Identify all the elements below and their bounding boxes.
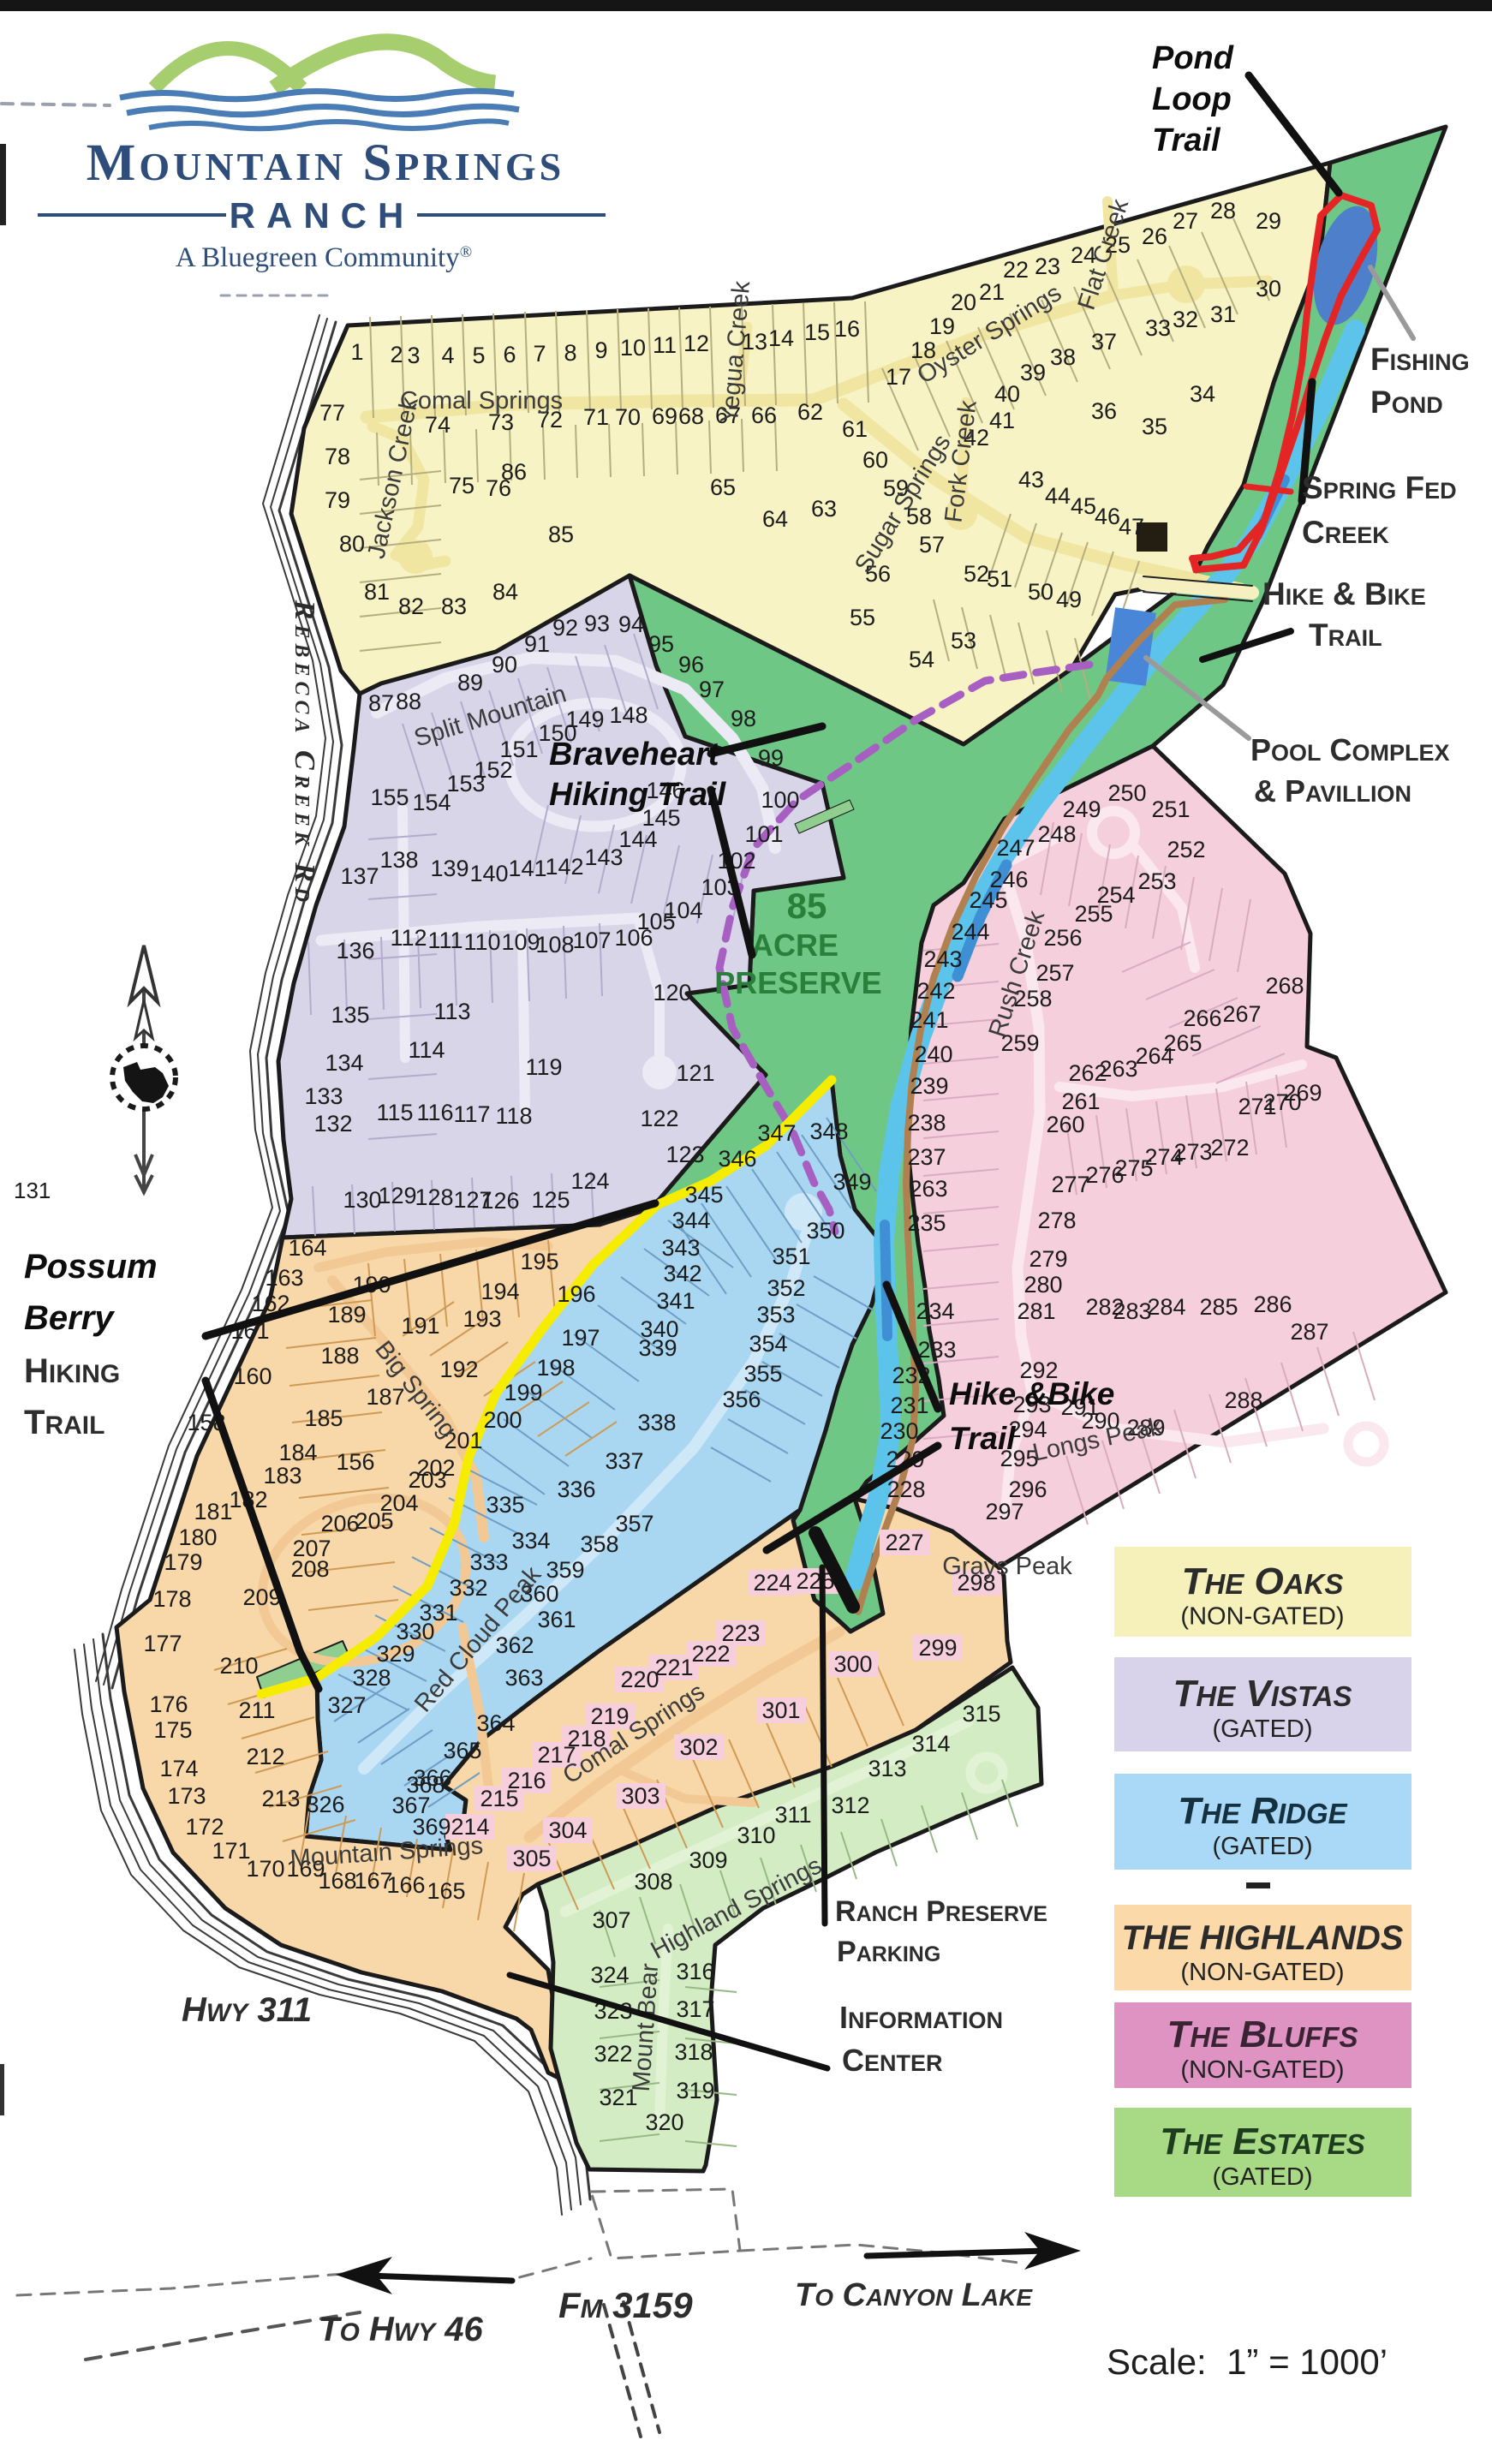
svg-text:174: 174 [159,1756,198,1781]
svg-text:356: 356 [722,1387,761,1412]
svg-text:119: 119 [525,1054,562,1080]
svg-text:4: 4 [441,343,454,368]
svg-text:(GATED): (GATED) [1212,1715,1312,1743]
svg-text:271: 271 [1238,1094,1276,1119]
svg-text:199: 199 [504,1380,542,1405]
svg-text:60: 60 [862,447,888,473]
svg-text:51: 51 [987,566,1012,592]
svg-text:213: 213 [261,1786,300,1811]
svg-text:343: 343 [661,1235,700,1261]
svg-text:70: 70 [615,404,641,430]
svg-text:141: 141 [508,856,546,881]
svg-text:10: 10 [620,335,646,361]
svg-text:252: 252 [1167,837,1205,862]
svg-text:64: 64 [762,506,788,532]
svg-text:361: 361 [537,1607,576,1632]
svg-text:160: 160 [233,1363,272,1389]
svg-text:305: 305 [512,1846,551,1871]
svg-text:26: 26 [1142,224,1167,249]
svg-text:317: 317 [676,1996,714,2022]
svg-text:195: 195 [520,1249,558,1274]
svg-text:33: 33 [1145,315,1171,341]
svg-text:191: 191 [401,1313,439,1339]
svg-text:30: 30 [1256,276,1281,301]
svg-text:188: 188 [320,1343,359,1369]
svg-text:342: 342 [663,1261,701,1286]
svg-text:125: 125 [531,1187,570,1213]
svg-text:297: 297 [985,1499,1024,1524]
svg-text:66: 66 [751,403,777,428]
svg-text:9: 9 [594,337,607,363]
svg-text:85: 85 [787,886,827,926]
svg-text:21: 21 [979,279,1005,305]
svg-text:ACRE: ACRE [751,928,839,963]
svg-text:148: 148 [609,702,648,728]
svg-text:328: 328 [352,1665,391,1691]
svg-text:347: 347 [757,1120,796,1146]
svg-text:230: 230 [880,1418,918,1444]
svg-text:153: 153 [446,771,485,796]
svg-text:15: 15 [804,319,830,345]
svg-text:Comal Springs: Comal Springs [400,387,563,415]
svg-text:353: 353 [756,1302,795,1327]
svg-text:310: 310 [737,1823,775,1848]
svg-text:Scale: 1” = 1000’: Scale: 1” = 1000’ [1107,2342,1388,2382]
svg-text:198: 198 [536,1355,575,1381]
svg-text:365: 365 [443,1738,481,1763]
svg-text:260: 260 [1046,1112,1084,1137]
svg-text:316: 316 [676,1959,714,1984]
svg-text:20: 20 [951,289,976,315]
svg-text:196: 196 [557,1281,595,1307]
svg-text:179: 179 [164,1549,202,1575]
svg-text:(NON-GATED): (NON-GATED) [1180,1959,1344,1986]
svg-text:263: 263 [909,1176,947,1202]
svg-text:92: 92 [552,615,578,641]
svg-text:341: 341 [656,1288,695,1314]
svg-text:205: 205 [355,1508,393,1534]
svg-text:71: 71 [583,404,609,430]
svg-text:80: 80 [339,531,365,557]
svg-text:334: 334 [511,1528,550,1554]
svg-text:68: 68 [678,403,704,429]
svg-text:THE HIGHLANDS: THE HIGHLANDS [1122,1919,1404,1957]
svg-text:216: 216 [507,1768,546,1793]
svg-text:Grays Peak: Grays Peak [942,1553,1072,1580]
svg-text:344: 344 [671,1208,710,1233]
svg-text:322: 322 [594,2041,632,2067]
svg-text:135: 135 [331,1002,369,1028]
svg-text:(GATED): (GATED) [1212,1833,1312,1860]
svg-text:86: 86 [501,459,527,485]
svg-text:2: 2 [390,342,403,367]
svg-text:16: 16 [834,316,860,342]
svg-text:Hiking Trail: Hiking Trail [549,777,727,813]
svg-text:27: 27 [1173,208,1198,234]
svg-text:331: 331 [419,1600,457,1626]
svg-text:133: 133 [304,1083,343,1109]
svg-text:178: 178 [152,1586,191,1612]
svg-text:61: 61 [842,416,868,442]
svg-text:345: 345 [684,1182,723,1208]
svg-text:75: 75 [449,473,474,498]
svg-text:363: 363 [504,1665,543,1691]
svg-text:22: 22 [1003,257,1029,283]
svg-text:39: 39 [1020,360,1046,385]
svg-text:238: 238 [907,1110,946,1136]
svg-text:176: 176 [149,1691,188,1717]
svg-text:41: 41 [989,408,1015,433]
svg-text:239: 239 [910,1073,948,1099]
svg-text:312: 312 [831,1793,869,1818]
svg-text:114: 114 [408,1037,445,1063]
svg-text:349: 349 [833,1169,871,1195]
svg-text:197: 197 [561,1325,600,1351]
svg-text:8: 8 [564,340,576,366]
svg-text:193: 193 [463,1306,501,1332]
svg-text:53: 53 [951,628,976,653]
svg-text:206: 206 [320,1511,359,1536]
svg-text:185: 185 [304,1405,343,1431]
svg-text:352: 352 [767,1275,805,1301]
svg-text:281: 281 [1017,1298,1055,1324]
svg-text:241: 241 [910,1007,948,1033]
svg-text:84: 84 [492,579,518,605]
svg-text:117: 117 [453,1101,490,1127]
svg-text:131: 131 [14,1178,51,1203]
svg-text:308: 308 [634,1869,672,1894]
svg-text:242: 242 [916,978,955,1004]
svg-text:227: 227 [885,1530,923,1555]
svg-text:38: 38 [1050,344,1076,370]
svg-text:362: 362 [495,1632,534,1658]
svg-text:171: 171 [212,1838,250,1864]
svg-text:122: 122 [640,1106,678,1131]
svg-text:327: 327 [327,1692,366,1718]
svg-text:285: 285 [1199,1294,1238,1320]
svg-text:34: 34 [1190,381,1215,407]
svg-text:240: 240 [914,1041,952,1067]
svg-text:211: 211 [238,1697,275,1723]
svg-text:181: 181 [194,1499,232,1524]
svg-text:138: 138 [379,847,418,873]
svg-text:348: 348 [809,1119,848,1144]
svg-text:354: 354 [749,1331,787,1357]
svg-text:220: 220 [620,1667,659,1692]
svg-text:223: 223 [721,1620,760,1646]
svg-text:311: 311 [774,1802,811,1828]
svg-text:PRESERVE: PRESERVE [714,965,881,1000]
svg-text:93: 93 [584,611,610,636]
svg-text:Trail: Trail [949,1421,1016,1456]
svg-text:FM 3159: FM 3159 [558,2285,693,2325]
svg-text:19: 19 [929,313,955,339]
svg-text:336: 336 [557,1477,595,1502]
svg-text:130: 130 [343,1187,381,1213]
svg-text:Trail: Trail [1152,122,1221,158]
svg-text:45: 45 [1071,493,1096,519]
svg-text:74: 74 [425,412,451,438]
svg-text:11: 11 [653,332,677,358]
svg-text:143: 143 [584,844,623,870]
svg-text:266: 266 [1183,1005,1221,1031]
svg-text:106: 106 [614,925,653,951]
svg-text:132: 132 [313,1111,352,1137]
svg-text:79: 79 [325,487,350,513]
svg-text:97: 97 [699,677,725,702]
svg-text:303: 303 [621,1783,659,1809]
svg-text:47: 47 [1119,514,1144,540]
svg-text:121: 121 [676,1060,714,1086]
svg-text:6: 6 [503,342,516,367]
svg-text:78: 78 [325,444,350,469]
svg-text:173: 173 [167,1783,206,1809]
svg-text:261: 261 [1061,1089,1100,1114]
svg-text:247: 247 [996,835,1035,861]
svg-text:237: 237 [907,1144,946,1170]
svg-text:251: 251 [1151,796,1190,822]
svg-text:82: 82 [398,594,424,619]
svg-text:(NON-GATED): (NON-GATED) [1180,2056,1344,2084]
svg-text:RANCH: RANCH [230,195,415,236]
svg-text:128: 128 [415,1184,453,1210]
svg-text:55: 55 [850,605,875,630]
svg-text:14: 14 [768,325,794,351]
svg-text:224: 224 [753,1570,791,1596]
svg-text:(NON-GATED): (NON-GATED) [1180,1603,1344,1631]
svg-text:335: 335 [486,1492,524,1518]
svg-text:257: 257 [1035,960,1074,986]
svg-text:358: 358 [580,1531,618,1557]
svg-text:98: 98 [731,706,756,731]
svg-text:46: 46 [1095,504,1120,529]
svg-text:337: 337 [605,1448,643,1474]
svg-text:155: 155 [370,785,409,810]
svg-text:69: 69 [652,403,677,429]
svg-text:1: 1 [350,339,363,365]
svg-text:175: 175 [153,1717,192,1743]
svg-text:340: 340 [640,1316,678,1342]
svg-text:77: 77 [319,400,345,426]
svg-text:A Bluegreen Community®: A Bluegreen Community® [176,242,472,273]
svg-text:194: 194 [480,1279,519,1304]
svg-text:140: 140 [469,861,508,886]
svg-text:177: 177 [143,1631,182,1656]
svg-text:272: 272 [1210,1135,1249,1160]
svg-text:200: 200 [483,1407,522,1433]
svg-text:164: 164 [288,1235,326,1261]
svg-text:137: 137 [340,863,379,889]
svg-text:250: 250 [1107,780,1146,806]
svg-text:163: 163 [265,1265,303,1291]
svg-text:332: 332 [449,1575,487,1601]
svg-text:278: 278 [1037,1208,1076,1233]
svg-text:286: 286 [1253,1292,1292,1317]
svg-text:57: 57 [919,532,945,558]
svg-text:263: 263 [1099,1056,1137,1082]
svg-text:170: 170 [246,1856,284,1882]
svg-text:43: 43 [1018,467,1044,492]
svg-text:231: 231 [890,1393,928,1418]
svg-text:107: 107 [572,928,611,953]
svg-text:228: 228 [886,1477,925,1502]
svg-text:235: 235 [907,1210,946,1236]
svg-text:129: 129 [378,1183,416,1208]
svg-text:134: 134 [325,1050,363,1076]
svg-text:112: 112 [390,925,427,951]
svg-text:115: 115 [376,1100,413,1125]
svg-text:280: 280 [1024,1272,1062,1298]
svg-text:192: 192 [439,1357,478,1382]
svg-text:319: 319 [676,2078,714,2103]
svg-text:(GATED): (GATED) [1212,2163,1312,2191]
svg-text:154: 154 [412,790,451,815]
svg-text:95: 95 [648,631,674,657]
svg-text:83: 83 [441,594,467,619]
svg-text:307: 307 [592,1907,630,1933]
svg-text:28: 28 [1210,198,1236,224]
svg-text:256: 256 [1043,925,1082,951]
svg-text:351: 351 [772,1244,810,1269]
svg-text:113: 113 [433,999,470,1024]
svg-text:233: 233 [917,1337,956,1363]
svg-text:183: 183 [263,1463,301,1489]
svg-text:249: 249 [1062,796,1101,822]
svg-text:139: 139 [430,856,468,881]
svg-text:127: 127 [453,1187,492,1213]
svg-text:304: 304 [548,1817,587,1843]
svg-text:Hike &Bike: Hike &Bike [949,1376,1114,1411]
svg-text:314: 314 [911,1731,950,1757]
svg-text:326: 326 [306,1792,344,1817]
svg-text:338: 338 [637,1410,676,1435]
svg-text:49: 49 [1056,587,1082,612]
svg-text:63: 63 [811,496,837,522]
svg-text:329: 329 [376,1641,415,1667]
svg-text:255: 255 [1074,901,1113,927]
svg-text:118: 118 [495,1103,532,1129]
svg-text:109: 109 [501,929,540,955]
svg-text:315: 315 [962,1701,1000,1727]
svg-text:87: 87 [368,690,394,716]
svg-text:Loop: Loop [1152,81,1232,117]
svg-text:54: 54 [909,647,934,672]
svg-text:210: 210 [219,1653,258,1679]
svg-text:253: 253 [1137,868,1176,894]
svg-text:7: 7 [533,341,546,367]
svg-text:368: 368 [406,1772,445,1798]
svg-text:50: 50 [1028,579,1053,605]
svg-text:267: 267 [1222,1001,1261,1027]
svg-text:35: 35 [1142,414,1167,439]
svg-text:108: 108 [535,932,574,958]
svg-text:36: 36 [1091,398,1117,424]
svg-text:184: 184 [278,1440,317,1465]
svg-text:287: 287 [1290,1319,1328,1345]
svg-text:299: 299 [918,1635,957,1661]
svg-text:359: 359 [546,1557,584,1583]
svg-text:156: 156 [336,1449,374,1475]
svg-text:12: 12 [683,331,709,356]
svg-text:243: 243 [923,946,962,972]
svg-text:116: 116 [416,1100,453,1125]
svg-text:320: 320 [645,2109,683,2135]
svg-text:333: 333 [469,1549,508,1575]
svg-text:124: 124 [570,1168,609,1194]
svg-text:32: 32 [1173,307,1198,332]
svg-text:111: 111 [427,928,463,953]
svg-text:120: 120 [653,980,691,1005]
svg-text:Braveheart: Braveheart [549,737,720,773]
svg-text:208: 208 [290,1556,329,1582]
svg-text:100: 100 [761,787,799,813]
svg-text:172: 172 [185,1814,224,1840]
svg-text:62: 62 [797,399,823,425]
svg-text:29: 29 [1256,208,1281,234]
svg-text:288: 288 [1224,1387,1262,1413]
svg-text:37: 37 [1091,329,1117,355]
svg-text:101: 101 [744,821,783,847]
svg-text:244: 244 [951,919,989,945]
svg-text:364: 364 [476,1710,515,1736]
svg-text:23: 23 [1035,254,1060,279]
svg-text:313: 313 [868,1756,906,1781]
svg-text:89: 89 [457,670,483,695]
svg-text:283: 283 [1113,1298,1151,1324]
svg-text:302: 302 [679,1734,718,1760]
svg-text:Pond: Pond [1152,40,1234,76]
svg-text:52: 52 [964,561,989,587]
svg-text:277: 277 [1051,1172,1089,1197]
svg-text:234: 234 [916,1298,954,1324]
svg-text:40: 40 [994,381,1020,407]
svg-text:300: 300 [833,1651,872,1677]
svg-text:189: 189 [327,1302,366,1327]
svg-text:136: 136 [336,938,374,964]
svg-text:355: 355 [743,1361,782,1387]
svg-text:309: 309 [689,1847,727,1873]
svg-text:284: 284 [1147,1294,1185,1320]
svg-text:203: 203 [408,1467,446,1493]
svg-text:Berry: Berry [24,1299,115,1337]
svg-text:268: 268 [1265,973,1304,999]
svg-text:276: 276 [1085,1162,1124,1188]
svg-text:221: 221 [654,1655,693,1680]
svg-text:246: 246 [989,867,1028,892]
svg-text:142: 142 [545,854,583,880]
svg-text:99: 99 [758,745,784,771]
svg-text:123: 123 [665,1142,704,1167]
svg-text:165: 165 [427,1878,465,1904]
svg-text:90: 90 [492,652,517,677]
svg-text:81: 81 [364,579,390,605]
svg-text:110: 110 [463,929,500,955]
svg-text:91: 91 [524,631,550,657]
svg-text:85: 85 [548,522,574,547]
svg-text:88: 88 [396,689,421,714]
svg-text:31: 31 [1210,301,1236,327]
svg-text:Possum: Possum [24,1248,158,1286]
svg-text:65: 65 [710,474,736,500]
svg-text:265: 265 [1163,1030,1202,1056]
svg-text:301: 301 [761,1697,800,1723]
svg-text:17: 17 [886,364,911,390]
svg-text:318: 318 [674,2039,713,2065]
svg-text:94: 94 [618,612,644,637]
svg-text:3: 3 [407,343,420,368]
svg-text:350: 350 [806,1218,844,1244]
svg-text:324: 324 [590,1962,629,1988]
